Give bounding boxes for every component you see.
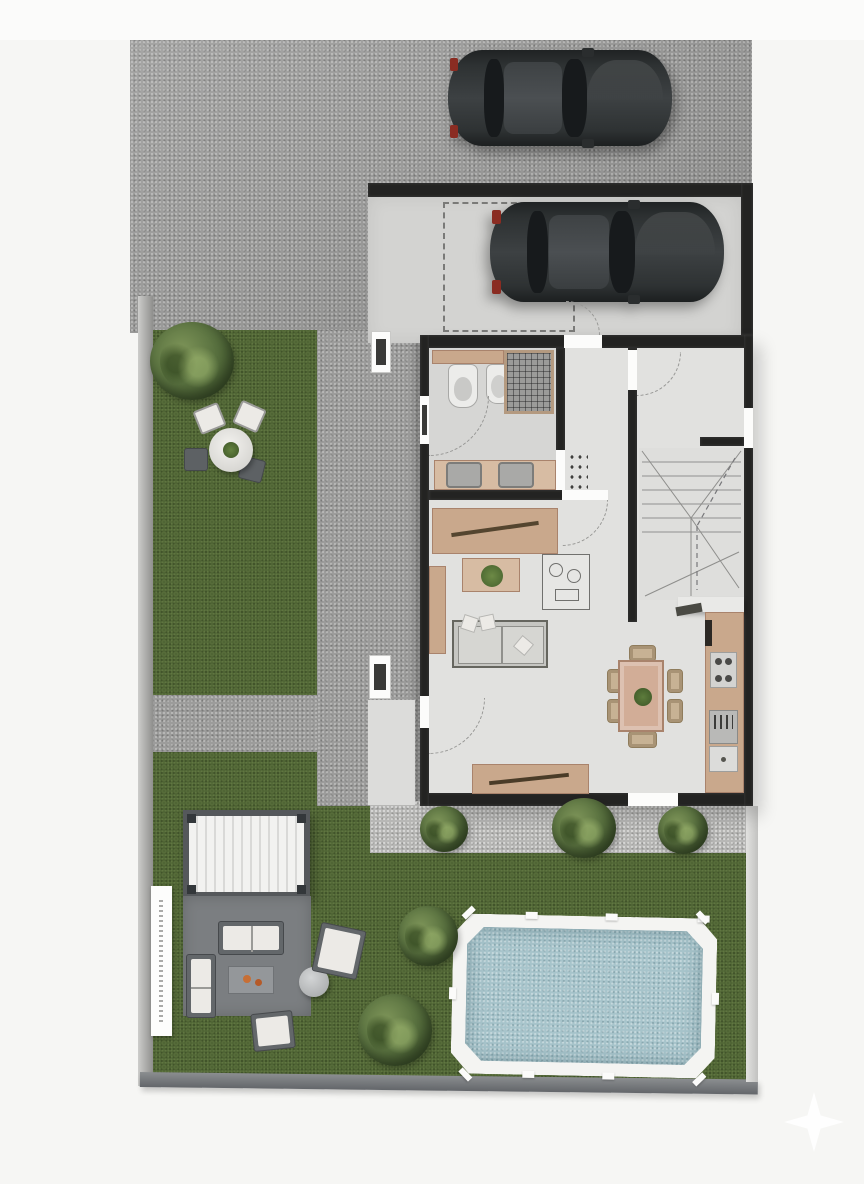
car-taillight-2 xyxy=(450,125,458,138)
entry-patio xyxy=(368,700,415,805)
lounge-sketch-cart xyxy=(542,554,590,610)
kitchen-grill-unit xyxy=(709,710,738,744)
pergola-post-1 xyxy=(187,814,196,823)
parked-car-carport xyxy=(490,202,724,302)
car-windshield xyxy=(562,59,587,138)
cart-detail-2 xyxy=(567,569,581,583)
car-rear-window xyxy=(484,59,504,138)
kitchen-sink xyxy=(709,746,738,772)
carport-wall-top xyxy=(368,183,753,197)
wall-bench xyxy=(429,566,446,654)
boundary-wall-right xyxy=(746,806,758,1082)
shrub-gravel-2 xyxy=(552,798,616,858)
sparkle-watermark-icon xyxy=(784,1092,844,1152)
shrub-gravel-3 xyxy=(658,806,708,854)
car-taillight-2 xyxy=(492,280,500,294)
shrub-gravel-1 xyxy=(420,806,468,852)
car-taillight-1 xyxy=(450,58,458,71)
dining-table xyxy=(618,660,664,732)
car-roof xyxy=(504,62,562,133)
bathroom-counter xyxy=(432,350,504,364)
dining-chair-bottom xyxy=(628,731,657,748)
window-left-bathroom xyxy=(420,396,429,444)
car-hood xyxy=(587,60,663,137)
tree-upper-lawn xyxy=(150,322,234,400)
table-decor-orange-2 xyxy=(255,979,262,986)
burner-4 xyxy=(725,675,732,682)
stove xyxy=(710,652,737,688)
sofa-pillow-2 xyxy=(479,614,497,632)
tree-pool-left xyxy=(398,906,458,966)
garden-round-table xyxy=(209,428,253,472)
window-right-stairs xyxy=(744,408,753,448)
garden-table-plant xyxy=(223,442,239,458)
window-glass xyxy=(376,339,386,365)
cart-detail-3 xyxy=(555,589,579,601)
pool-tab-top-2 xyxy=(606,913,618,920)
car-roof xyxy=(549,215,610,289)
sofa-cushion-left xyxy=(458,626,502,664)
pool-tab-bottom-2 xyxy=(602,1072,614,1079)
armchair-cushion xyxy=(317,928,361,975)
entry-wall-bottom xyxy=(700,437,744,446)
staircase xyxy=(639,448,744,600)
car-hood xyxy=(635,212,715,292)
dining-chair-right-2 xyxy=(667,699,683,723)
sideboard-lower-decor xyxy=(489,773,569,785)
pergola xyxy=(183,810,310,898)
shower xyxy=(504,350,554,414)
dining-table-plant xyxy=(634,688,652,706)
sideboard-upper xyxy=(432,508,558,554)
car-mirror-right xyxy=(628,295,640,304)
door-opening-bathroom-hall xyxy=(556,450,565,490)
bathroom-wall-bottom xyxy=(429,490,565,500)
garden-cross-path xyxy=(138,695,317,752)
carport-wall-right xyxy=(741,183,753,335)
pool-tab-right xyxy=(712,993,719,1005)
door-opening-carport-hall xyxy=(564,335,602,348)
pergola-post-2 xyxy=(297,814,306,823)
sideboard-lower xyxy=(472,764,589,794)
living-sofa xyxy=(452,620,548,668)
pergola-post-3 xyxy=(187,885,196,894)
house xyxy=(420,335,753,806)
garden-door-opening xyxy=(628,793,678,806)
window-marker-carport-left xyxy=(371,331,391,373)
hallway-shoe-row xyxy=(568,452,588,494)
architectural-render-page: { "scene": { "type": "3d-top-down-floor-… xyxy=(0,0,864,1184)
front-door-opening xyxy=(420,696,429,728)
top-margin-band xyxy=(0,0,864,40)
house-wall-right xyxy=(744,335,753,806)
armchair-cushion xyxy=(256,1015,291,1046)
pool-water xyxy=(465,927,704,1066)
car-taillight-1 xyxy=(492,210,500,224)
burner-2 xyxy=(725,658,732,665)
sink-faucet xyxy=(721,757,726,762)
boundary-sign xyxy=(151,886,172,1036)
car-mirror-left xyxy=(628,200,640,209)
window-glass xyxy=(422,405,427,436)
loveseat-split xyxy=(251,926,253,952)
coffee-table xyxy=(462,558,520,592)
pool-tab-left xyxy=(449,987,456,999)
car-mirror-left xyxy=(582,48,593,57)
window-glass xyxy=(374,664,385,691)
kitchen-cabinet-handle xyxy=(705,620,712,646)
cart-detail-1 xyxy=(549,563,563,577)
burner-3 xyxy=(715,675,722,682)
coffee-table-plant xyxy=(481,565,503,587)
vanity-sink-right xyxy=(498,462,534,488)
sign-fine-print xyxy=(159,900,163,1022)
car-mirror-right xyxy=(582,139,593,148)
outdoor-coffee-table xyxy=(228,966,274,994)
grill-vents xyxy=(714,715,733,729)
table-decor-orange-1 xyxy=(243,975,251,983)
pergola-post-4 xyxy=(297,885,306,894)
pool-tab-top-1 xyxy=(526,912,538,919)
vanity-sink-left xyxy=(446,462,482,488)
outdoor-armchair-bottom xyxy=(250,1010,296,1052)
chaise-cushion xyxy=(191,959,211,1013)
chaise-split xyxy=(191,987,211,989)
burner-1 xyxy=(715,658,722,665)
sideboard-decor xyxy=(451,521,539,537)
outdoor-loveseat xyxy=(218,921,284,955)
pool-tab-bottom-1 xyxy=(522,1071,534,1078)
dining-chair-right-1 xyxy=(667,669,683,693)
outdoor-chaise xyxy=(186,954,216,1018)
garden-chair-dark-1 xyxy=(184,448,208,471)
car-rear-window xyxy=(527,211,548,293)
window-marker-living-left xyxy=(369,655,391,699)
door-opening-hall-living xyxy=(562,490,608,500)
swimming-pool xyxy=(450,913,717,1078)
parked-car-street xyxy=(448,50,672,146)
car-windshield xyxy=(609,211,635,293)
door-opening-entry xyxy=(628,350,637,390)
tree-garden-bottom xyxy=(358,994,432,1066)
